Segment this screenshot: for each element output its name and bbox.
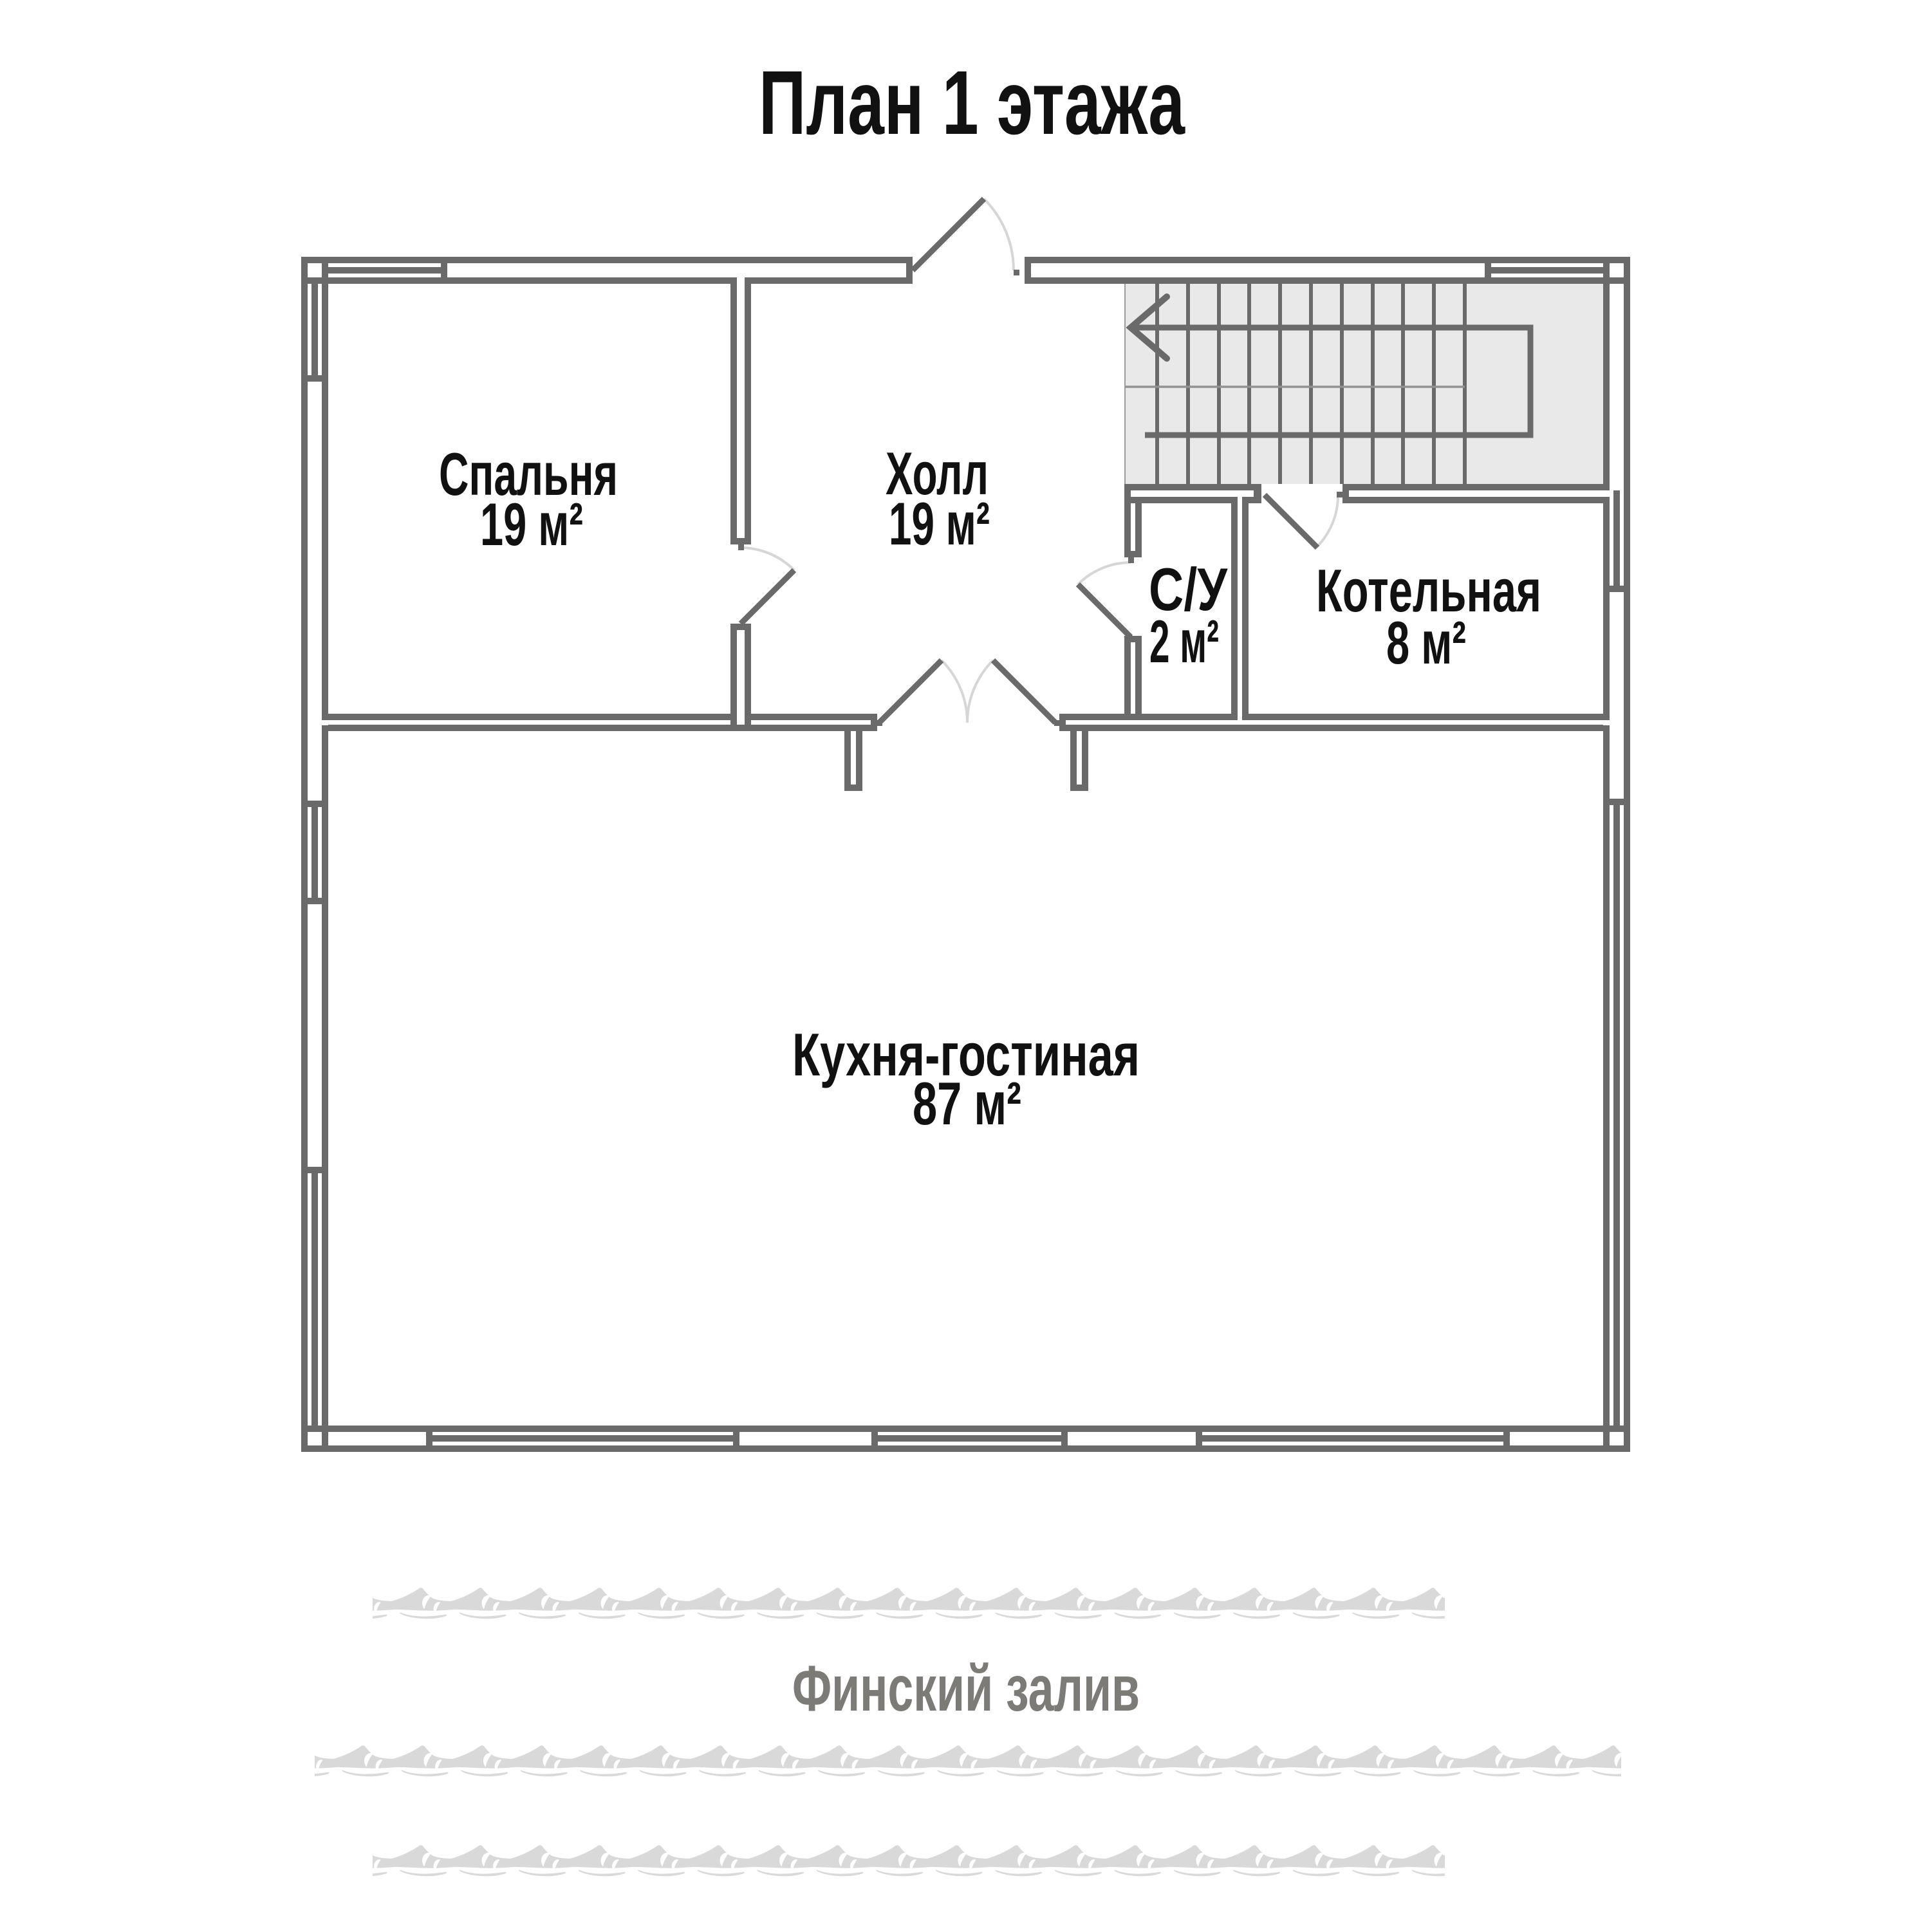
svg-text:19 м²: 19 м² xyxy=(889,490,990,557)
svg-text:Финский залив: Финский залив xyxy=(792,1653,1140,1725)
svg-text:87 м²: 87 м² xyxy=(913,1070,1021,1137)
svg-text:План 1 этажа: План 1 этажа xyxy=(759,51,1185,153)
svg-text:8 м²: 8 м² xyxy=(1386,609,1466,676)
svg-text:19 м²: 19 м² xyxy=(480,490,583,558)
svg-text:2 м²: 2 м² xyxy=(1149,608,1219,675)
